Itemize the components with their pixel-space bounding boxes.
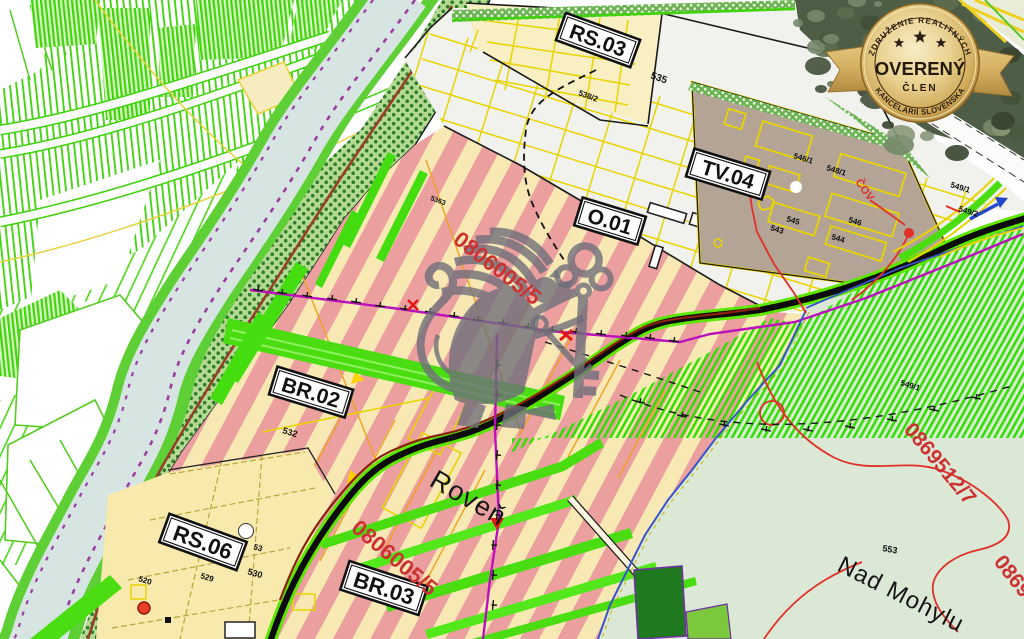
svg-text:ČLEN: ČLEN (902, 81, 937, 94)
svg-text:OVERENÝ: OVERENÝ (875, 58, 966, 79)
